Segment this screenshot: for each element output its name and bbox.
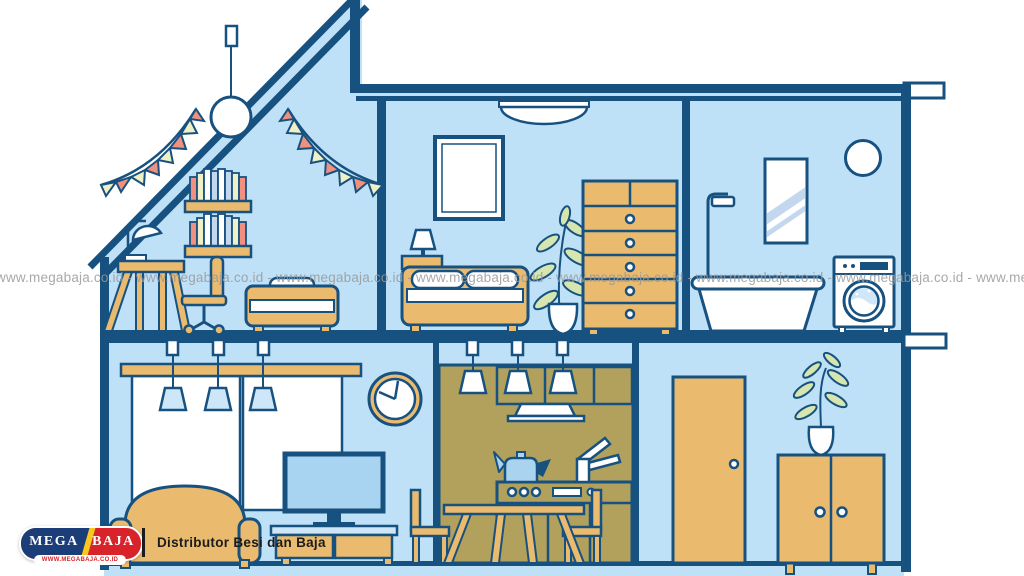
wall-clock <box>369 373 421 425</box>
door <box>673 377 745 563</box>
flat-roof <box>350 84 906 93</box>
left-wall <box>100 257 109 570</box>
house-cutaway-illustration: www.megabaja.co.id - www.megabaja.co.id … <box>0 0 1024 576</box>
house-art <box>0 0 1024 576</box>
right-wall <box>901 84 911 572</box>
hall-cabinet <box>778 455 884 574</box>
logo-website: WWW.MEGABAJA.CO.ID <box>34 555 126 565</box>
range-hood <box>515 404 575 416</box>
dresser <box>583 181 677 335</box>
upper-exterior-wall <box>350 0 360 90</box>
stove-knob <box>508 488 516 496</box>
attic-bedroom-wall <box>377 96 386 336</box>
oven-handle <box>553 488 581 496</box>
kitchen <box>411 340 633 563</box>
bathroom-mirror <box>760 159 810 243</box>
hall-vase <box>809 427 834 455</box>
bedroom-bathroom-wall <box>682 100 690 336</box>
shower-head <box>712 197 734 206</box>
washing-machine <box>834 257 894 333</box>
attic-daybed <box>246 278 338 332</box>
watermark-row: www.megabaja.co.id - www.megabaja.co.id … <box>0 270 1024 285</box>
ceiling-line <box>356 96 905 101</box>
bathtub <box>692 277 824 331</box>
logo-divider <box>142 528 145 557</box>
picture-frame <box>435 137 503 219</box>
logo-tagline: Distributor Besi dan Baja <box>157 528 326 557</box>
curtain-rod <box>121 364 361 376</box>
attic-pendant-light <box>211 26 251 137</box>
logo-word-mega: MEGA <box>21 528 87 554</box>
round-window <box>846 141 881 176</box>
stove-knob <box>532 488 540 496</box>
stove-knob <box>520 488 528 496</box>
door-knob <box>730 460 738 468</box>
pendant-globe <box>211 97 251 137</box>
floor-overhang <box>904 334 946 348</box>
ground-strip <box>104 566 904 576</box>
tv-screen <box>285 454 383 511</box>
logo-word-baja: BAJA <box>86 528 141 554</box>
